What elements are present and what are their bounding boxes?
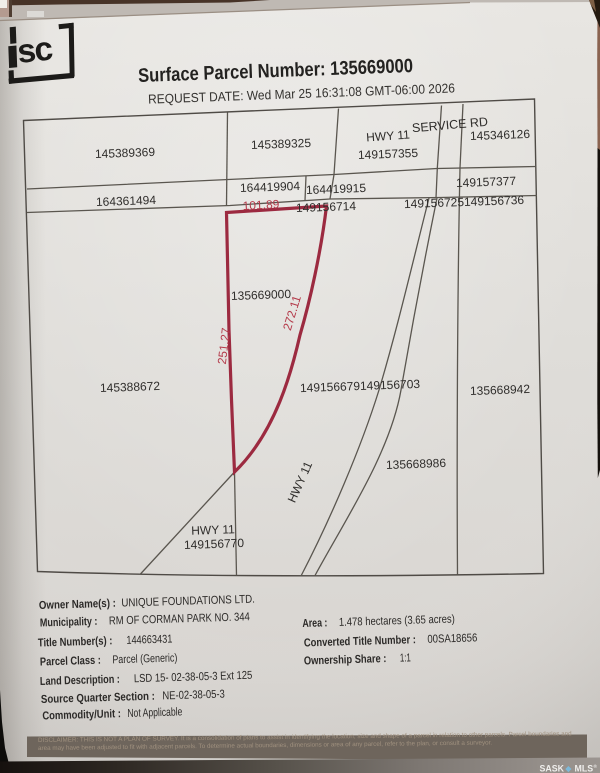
svg-text:HWY 11: HWY 11 (191, 522, 235, 538)
svg-text:NE-02-38-05-3: NE-02-38-05-3 (162, 689, 225, 703)
svg-text:Municipality :: Municipality : (40, 616, 98, 630)
svg-text:149157355: 149157355 (358, 146, 419, 162)
svg-text:101.89: 101.89 (242, 197, 280, 213)
svg-text:Owner Name(s) :: Owner Name(s) : (39, 598, 116, 612)
svg-text:135669000: 135669000 (231, 287, 292, 303)
svg-text:145346126: 145346126 (470, 127, 531, 143)
svg-text:149157377: 149157377 (456, 174, 517, 190)
svg-text:164361494: 164361494 (96, 193, 157, 209)
svg-text:144663431: 144663431 (126, 634, 172, 647)
svg-text:Parcel Class :: Parcel Class : (40, 655, 101, 669)
svg-text:MLS: MLS (575, 764, 594, 773)
svg-text:Parcel (Generic): Parcel (Generic) (112, 652, 177, 666)
svg-text:SASK: SASK (540, 764, 565, 773)
svg-text:Not Applicable: Not Applicable (127, 706, 182, 720)
svg-text:145389369: 145389369 (95, 145, 156, 161)
svg-text:00SA18656: 00SA18656 (427, 632, 477, 645)
svg-text:149156714: 149156714 (296, 199, 357, 215)
svg-text:1:1: 1:1 (400, 652, 411, 664)
svg-text:164419904: 164419904 (240, 179, 301, 195)
svg-text:Commodity/Unit :: Commodity/Unit : (42, 708, 121, 722)
svg-text:149156770: 149156770 (184, 536, 245, 552)
svg-text:145388672: 145388672 (100, 379, 161, 395)
svg-text:164419915: 164419915 (306, 181, 367, 197)
svg-text:Ownership Share :: Ownership Share : (304, 653, 387, 667)
svg-text:135668942: 135668942 (470, 382, 531, 398)
svg-text:145389325: 145389325 (251, 136, 312, 152)
svg-text:Title Number(s) :: Title Number(s) : (38, 635, 113, 649)
svg-text:135668986: 135668986 (386, 456, 447, 472)
svg-text:Land Description :: Land Description : (40, 674, 120, 688)
svg-text:sc: sc (15, 30, 54, 70)
svg-text:Area :: Area : (302, 617, 327, 630)
